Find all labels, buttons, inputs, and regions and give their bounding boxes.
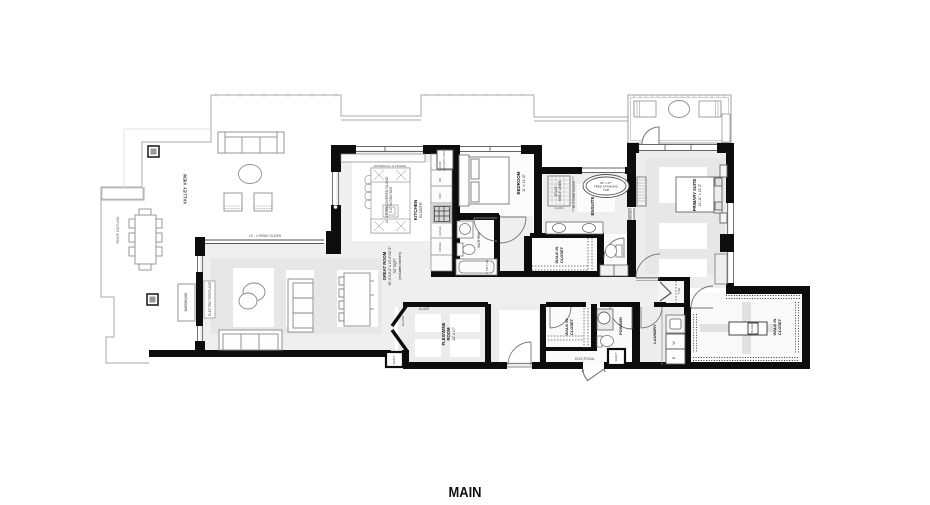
svg-text:MAIN: MAIN — [449, 484, 482, 500]
svg-text:GLASS: GLASS — [419, 307, 430, 311]
svg-text:ROOF OUTLINE: ROOF OUTLINE — [116, 216, 120, 244]
svg-text:LAUNDRY: LAUNDRY — [652, 324, 657, 344]
svg-text:CLOSET: CLOSET — [559, 246, 564, 263]
svg-text:KITCHEN: KITCHEN — [413, 199, 418, 220]
svg-text:POWDER: POWDER — [618, 317, 623, 335]
svg-text:TUB: TUB — [603, 188, 609, 192]
svg-text:16' - 4 PANEL SLIDER: 16' - 4 PANEL SLIDER — [249, 234, 282, 238]
svg-text:18' STONE GLASS: 18' STONE GLASS — [572, 181, 576, 208]
svg-text:BI CB/TR: BI CB/TR — [419, 202, 423, 218]
svg-text:WA/MW: WA/MW — [438, 161, 442, 171]
svg-text:ELECTRIC FIREPLACE: ELECTRIC FIREPLACE — [208, 282, 212, 316]
svg-text:BATHRM: BATHRM — [477, 233, 481, 248]
svg-text:(includes kitchen): (includes kitchen) — [398, 252, 402, 280]
svg-text:BARBEQUE: BARBEQUE — [184, 292, 188, 312]
svg-text:PRIMARY SUITE: PRIMARY SUITE — [692, 179, 697, 212]
svg-text:LAUNDRY CHUTE: LAUNDRY CHUTE — [442, 149, 446, 171]
svg-text:ENSUITE: ENSUITE — [590, 196, 595, 215]
svg-text:DW: DW — [438, 177, 442, 182]
svg-text:GLASS: GLASS — [555, 206, 564, 210]
svg-text:SHAFT: SHAFT — [614, 352, 618, 361]
svg-text:SHAFT: SHAFT — [392, 355, 396, 364]
svg-text:BEDROOM: BEDROOM — [516, 171, 521, 194]
svg-text:GREAT ROOM: GREAT ROOM — [382, 251, 387, 280]
svg-text:SHELF LINEN: SHELF LINEN — [558, 180, 562, 201]
svg-text:3'-0" EATING BAR: 3'-0" EATING BAR — [389, 186, 393, 213]
svg-text:CLOSET: CLOSET — [569, 318, 574, 335]
svg-text:FRIDGE: FRIDGE — [438, 242, 442, 252]
svg-text:ELECTRICAL: ELECTRICAL — [575, 357, 595, 361]
svg-text:WATERFALL & FRIDGE: WATERFALL & FRIDGE — [374, 164, 406, 168]
svg-text:GLASS: GLASS — [401, 316, 405, 326]
svg-text:POCKET: POCKET — [629, 208, 633, 221]
svg-text:RANGE: RANGE — [438, 226, 442, 235]
svg-text:ISLAND: ISLAND — [750, 324, 754, 333]
svg-text:5' FB TUB: 5' FB TUB — [485, 260, 489, 274]
svg-text:VALLEY VIEW: VALLEY VIEW — [183, 174, 188, 204]
svg-text:5 SH: 5 SH — [677, 288, 681, 294]
svg-text:CLOSET: CLOSET — [777, 318, 782, 335]
svg-text:787 SQFT: 787 SQFT — [393, 258, 397, 273]
svg-text:36'-0"/18'-2" x 19'-3"/32'-5": 36'-0"/18'-2" x 19'-3"/32'-5" — [388, 246, 392, 286]
svg-text:11' x 11'-6": 11' x 11'-6" — [522, 173, 526, 192]
svg-text:12' x 17': 12' x 17' — [452, 327, 456, 340]
svg-text:21'-11" x 12'-3": 21'-11" x 12'-3" — [698, 183, 702, 206]
svg-text:SINK: SINK — [438, 193, 442, 199]
svg-text:ROOM: ROOM — [446, 327, 451, 341]
